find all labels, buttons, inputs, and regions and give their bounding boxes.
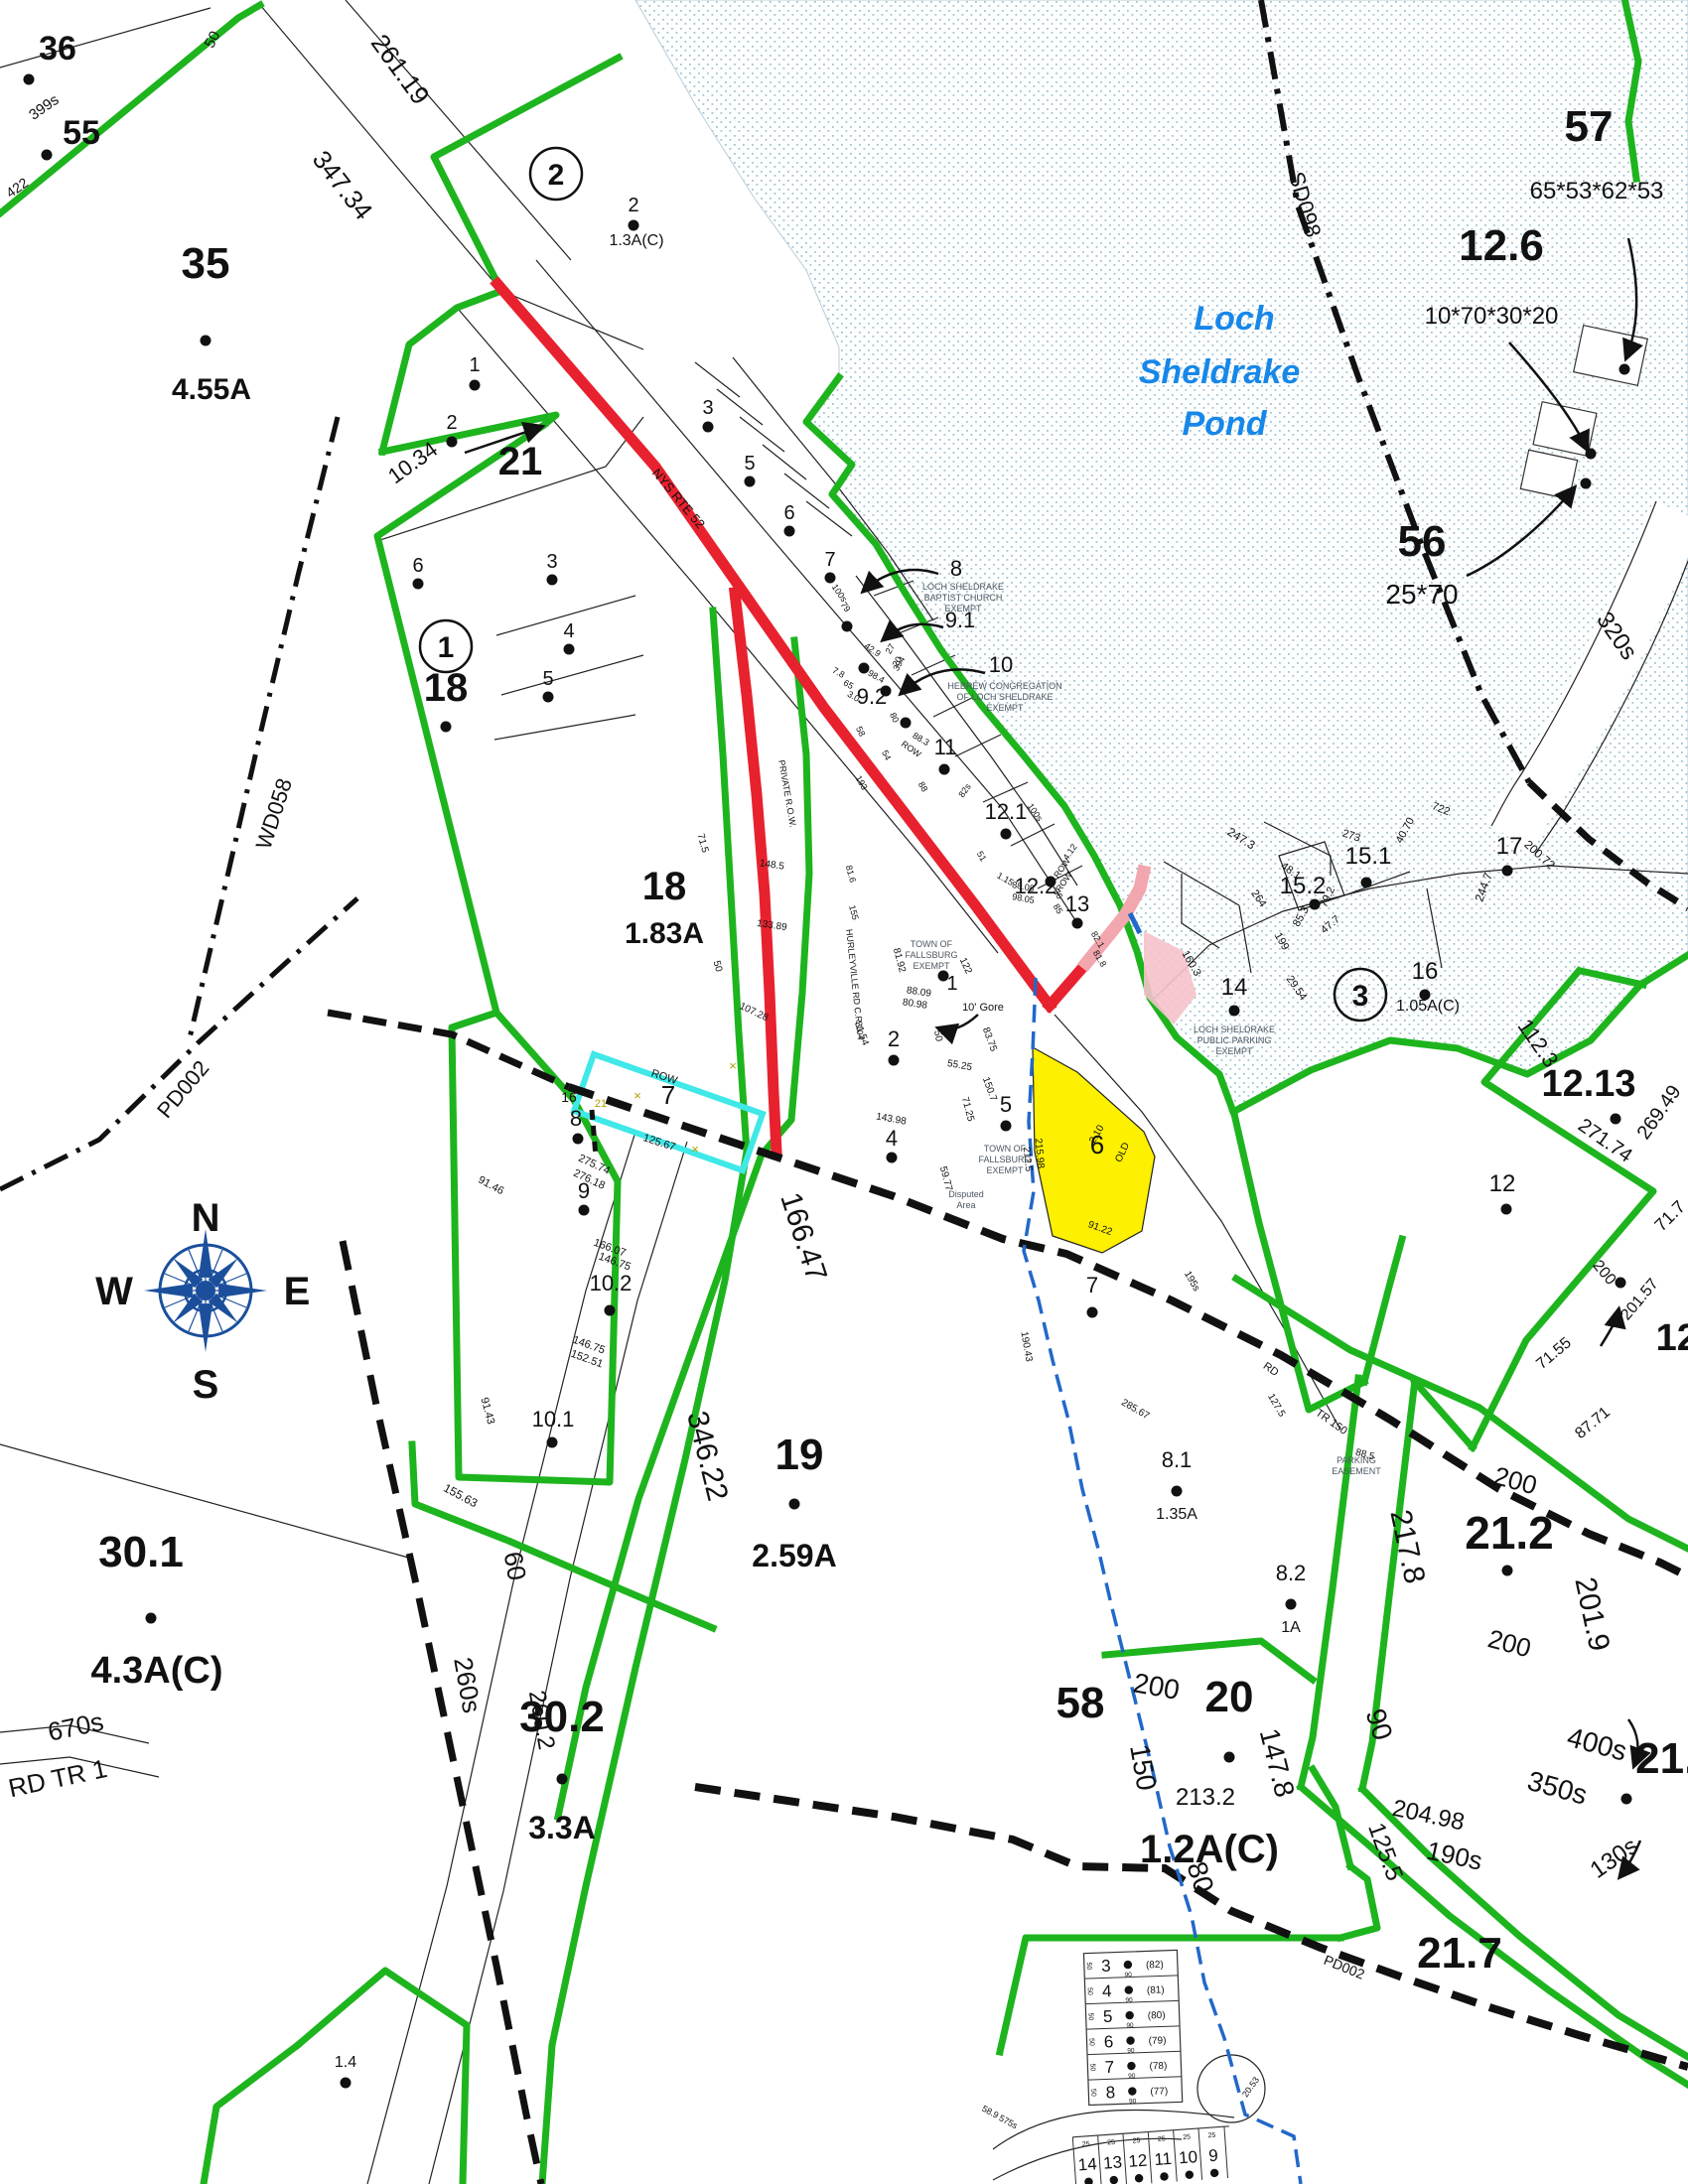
map-label: 122 — [957, 956, 974, 976]
compass-letters: N S W E — [95, 1196, 310, 1407]
map-label: 1A — [1281, 1619, 1301, 1636]
svg-text:50: 50 — [1087, 2012, 1094, 2020]
parcel-dot — [341, 2078, 352, 2089]
map-label: HEBREW CONGREGATION — [947, 681, 1061, 691]
parcel-dot — [842, 621, 853, 632]
map-label: 190s — [1424, 1836, 1484, 1876]
map-label: 3 — [702, 397, 713, 419]
map-label: × — [729, 1058, 737, 1073]
map-label: 12 — [1489, 1170, 1516, 1197]
parcel-dot — [939, 764, 950, 775]
svg-text:11: 11 — [1154, 2149, 1173, 2169]
map-label: 65*53*62*53 — [1530, 178, 1664, 205]
map-label: 1.2A(C) — [1140, 1828, 1279, 1871]
map-label: LOCH SHELDRAKE — [1194, 1024, 1275, 1034]
map-label: 125.67 — [641, 1132, 677, 1154]
parcel-dot — [1001, 1121, 1012, 1132]
parcel-dot — [1611, 1114, 1621, 1125]
parcel-dot — [1001, 829, 1012, 840]
map-label: 195s — [1182, 1270, 1201, 1294]
map-label: TOWN OF — [984, 1144, 1027, 1154]
parcel-dot — [825, 573, 836, 584]
parcel-dot — [1172, 1486, 1183, 1497]
parcel-dot — [573, 1134, 584, 1145]
map-label: 54 — [880, 749, 893, 761]
parcel-dot — [579, 1205, 590, 1216]
map-label: 91.46 — [476, 1174, 505, 1198]
circled-number: 1 — [438, 631, 455, 664]
map-label: 1.05A(C) — [1396, 998, 1460, 1015]
map-label: 8.2 — [1276, 1561, 1307, 1585]
map-label: NYS RTE 52 — [649, 466, 708, 531]
map-label: FALLSBURG — [905, 950, 957, 960]
parcel-dot — [1502, 1566, 1513, 1576]
map-label: 35 — [182, 239, 230, 288]
map-label: 55 — [63, 114, 100, 152]
map-label: 71.5 — [695, 833, 711, 855]
map-label: 21 — [498, 440, 543, 483]
map-label: 21 — [595, 1098, 607, 1110]
svg-text:25: 25 — [1082, 2141, 1090, 2149]
map-label: 11 — [934, 735, 957, 759]
parcel-dot — [42, 150, 53, 161]
lot-table-columns: 14251325122511251025925 — [1072, 2126, 1232, 2184]
map-label: 15.1 — [1345, 843, 1392, 870]
map-label: 200 — [1484, 1623, 1534, 1663]
parcel-dot — [1229, 1006, 1240, 1017]
map-label: 18 — [642, 865, 687, 908]
map-label: Disputed — [948, 1189, 984, 1199]
map-label: 50 — [711, 960, 725, 974]
map-label: 50 — [931, 1029, 944, 1042]
svg-text:9: 9 — [1208, 2146, 1219, 2166]
svg-text:50: 50 — [1089, 2089, 1096, 2097]
map-label: 2.59A — [752, 1538, 836, 1573]
map-label: 21.3 — [1635, 1734, 1688, 1783]
map-label: FALLSBURG — [978, 1155, 1031, 1164]
map-label: 10' Gore — [962, 1002, 1004, 1014]
map-label: EXEMPT — [986, 703, 1024, 713]
svg-text:3: 3 — [1101, 1957, 1111, 1976]
parcel-dot — [470, 380, 481, 391]
svg-text:(82): (82) — [1146, 1960, 1164, 1972]
parcel-dot — [745, 477, 756, 487]
parcel-dot — [201, 336, 211, 346]
map-label: 80 — [888, 711, 901, 724]
map-label: 6 — [1090, 1130, 1104, 1160]
map-label: 14 — [1221, 974, 1248, 1001]
map-label: 90 — [1359, 1705, 1398, 1743]
map-label: 9.2 — [857, 684, 888, 709]
svg-text:6: 6 — [1104, 2032, 1114, 2051]
parcel-dot — [1224, 1752, 1235, 1763]
map-label: 25*70 — [1385, 579, 1458, 610]
compass-w: W — [95, 1270, 133, 1313]
parcel-dot — [1286, 1599, 1297, 1610]
map-label: 6 — [783, 502, 794, 524]
map-label: TR 150 — [1314, 1407, 1349, 1437]
map-label: 21.7 — [1417, 1929, 1502, 1978]
map-label: LOCH SHELDRAKE — [922, 582, 1004, 592]
map-label: Area — [956, 1200, 975, 1210]
map-label: 4.55A — [172, 373, 251, 406]
map-label: 15.2 — [1280, 873, 1327, 899]
map-label: 98.4 — [866, 668, 886, 685]
svg-text:4: 4 — [1102, 1981, 1112, 2000]
parcel-dot — [1581, 478, 1592, 489]
parcel-dot — [557, 1774, 568, 1785]
map-label: 71.55 — [1533, 1334, 1575, 1373]
map-label: 16 — [1412, 958, 1439, 985]
map-label: 10.1 — [532, 1407, 575, 1432]
map-label: 2 — [446, 412, 457, 434]
map-label: 65 — [842, 678, 856, 692]
map-label: 347.34 — [307, 145, 379, 225]
map-label: 83.75 — [980, 1026, 999, 1054]
map-label: 215.98 — [1033, 1138, 1047, 1169]
map-label: 1.3A(C) — [609, 232, 663, 249]
map-label: 575s — [997, 2113, 1019, 2130]
map-label: × — [691, 1142, 699, 1157]
map-label: 88 — [916, 780, 930, 794]
parcel-dot — [543, 692, 554, 703]
parcel-dot — [1619, 364, 1630, 375]
map-label: 2 — [888, 1026, 900, 1051]
map-label: WD058 — [251, 775, 297, 852]
parcel-dot — [889, 1055, 900, 1066]
map-label: 71.7 — [1650, 1196, 1688, 1235]
map-label: 285.67 — [1119, 1397, 1151, 1422]
map-label: 5 — [1000, 1092, 1012, 1117]
map-label: 8 — [950, 556, 962, 581]
map-label: 4 — [563, 620, 574, 642]
map-label: PUBLIC PARKING — [1197, 1035, 1272, 1045]
map-label: 27 — [884, 642, 898, 656]
parcel-dot — [703, 422, 714, 433]
map-label: OF LOCH SHELDRAKE — [956, 692, 1053, 702]
map-label: Sheldrake — [1139, 353, 1301, 391]
map-label: 51 — [975, 850, 989, 864]
svg-text:12: 12 — [1128, 2151, 1148, 2171]
map-label: 150.7 — [980, 1076, 999, 1104]
small-lot-tables: 3(82)50904(81)50905(80)50906(79)50907(78… — [1072, 1950, 1232, 2184]
map-label: 21.2 — [1465, 1507, 1554, 1559]
map-label: 57 — [1565, 102, 1614, 151]
map-label: 85 — [1052, 902, 1065, 916]
map-label: EXEMPT — [986, 1165, 1024, 1175]
parcel-dot — [564, 644, 575, 655]
map-label: 261.19 — [365, 29, 436, 110]
map-label: 1.83A — [625, 917, 704, 950]
parcel-dot — [887, 1153, 898, 1163]
svg-text:10: 10 — [1178, 2147, 1197, 2167]
map-label: EXEMPT — [1215, 1046, 1253, 1056]
map-label: 7 — [824, 549, 835, 571]
map-label: 10.2 — [590, 1271, 633, 1296]
map-label: 91.43 — [479, 1396, 497, 1426]
parcel-dot — [447, 437, 458, 448]
map-label: 100s — [1026, 801, 1046, 823]
map-label: 19 — [775, 1431, 824, 1479]
map-label: 200 — [1131, 1667, 1182, 1706]
map-label: × — [633, 1088, 641, 1103]
map-label: 213.2 — [1176, 1784, 1235, 1811]
parcel-dot — [1586, 449, 1597, 460]
svg-text:50: 50 — [1085, 1962, 1092, 1970]
svg-text:8: 8 — [1105, 2083, 1115, 2102]
map-label: 4.3A(C) — [90, 1650, 222, 1692]
parcel-dot — [859, 663, 870, 674]
map-label: 200 — [1490, 1460, 1540, 1500]
svg-text:5: 5 — [1103, 2007, 1113, 2026]
map-label: 6 — [412, 555, 423, 577]
map-label: PRIVATE R.O.W. — [776, 759, 798, 828]
parcel-dot — [1072, 918, 1083, 929]
map-label: 55.25 — [946, 1058, 973, 1073]
map-label: 10*70*30*20 — [1425, 303, 1559, 330]
map-label: 5 — [542, 668, 553, 690]
map-label: 12.13 — [1541, 1063, 1635, 1105]
svg-text:25: 25 — [1132, 2137, 1140, 2145]
svg-text:(77): (77) — [1150, 2086, 1168, 2098]
map-label: EXEMPT — [944, 604, 982, 614]
svg-text:(80): (80) — [1148, 2010, 1166, 2022]
parcel-dot — [629, 220, 639, 231]
circled-number: 3 — [1352, 980, 1369, 1013]
map-label: 17 — [1496, 833, 1523, 860]
map-label: 60 — [498, 1550, 533, 1583]
map-label: 87.71 — [1572, 1404, 1614, 1442]
map-label: 80.98 — [902, 997, 928, 1011]
map-label: PD002 — [152, 1055, 213, 1123]
map-label: 10 — [989, 652, 1013, 677]
svg-text:25: 25 — [1158, 2135, 1166, 2143]
map-label: 30.2 — [519, 1693, 605, 1741]
map-label: 20 — [1205, 1673, 1254, 1721]
svg-text:50: 50 — [1088, 2063, 1095, 2071]
parcel-dot — [784, 526, 795, 537]
map-label: 1 — [469, 354, 480, 376]
map-label: 193 — [854, 773, 870, 791]
map-label: 422 — [3, 175, 31, 202]
compass-s: S — [193, 1363, 219, 1407]
map-label: 20.53 — [1240, 2075, 1261, 2099]
svg-text:13: 13 — [1102, 2152, 1122, 2172]
map-label: 155 — [847, 904, 861, 921]
map-label: 1 — [946, 973, 957, 995]
svg-text:90: 90 — [1129, 2098, 1137, 2105]
parcel-dot — [146, 1613, 157, 1624]
parcel-dot — [1361, 878, 1372, 888]
parcel-dot — [605, 1305, 616, 1316]
map-label: 4 — [886, 1126, 898, 1151]
map-label: 147.8 — [1254, 1725, 1301, 1800]
parcel-map: N S W E 213 3(82)50904(81)50905(80)50906… — [0, 0, 1688, 2184]
map-label: 18 — [424, 666, 469, 710]
compass-e: E — [284, 1270, 311, 1313]
map-label: BAPTIST CHURCH — [924, 593, 1003, 603]
map-label: Loch — [1194, 300, 1274, 338]
parcel-dot — [441, 722, 452, 733]
map-label: 260s — [448, 1655, 487, 1715]
svg-text:(78): (78) — [1149, 2061, 1167, 2073]
map-label: 13 — [1065, 891, 1089, 916]
svg-text:50: 50 — [1087, 2038, 1094, 2046]
map-label: 12.6 — [1459, 221, 1544, 270]
map-label: 71.25 — [959, 1096, 976, 1123]
svg-text:25: 25 — [1107, 2139, 1115, 2147]
map-label: 58 — [854, 725, 867, 738]
svg-text:7: 7 — [1104, 2058, 1114, 2077]
map-label: 8 — [570, 1106, 582, 1131]
map-label: 9 — [578, 1178, 590, 1203]
map-label: 190.43 — [1018, 1331, 1034, 1363]
map-label: 81.54 — [852, 1021, 871, 1048]
map-label: 82s — [956, 781, 973, 799]
map-label: 2 — [628, 195, 638, 216]
map-label: 16 — [561, 1089, 577, 1105]
map-label: Pond — [1183, 405, 1268, 443]
map-label: 166.47 — [774, 1188, 833, 1285]
map-label: 30.1 — [98, 1528, 184, 1576]
svg-text:25: 25 — [1183, 2134, 1191, 2142]
map-label: 269.49 — [1633, 1081, 1686, 1144]
svg-text:(79): (79) — [1148, 2035, 1166, 2047]
map-label: 58.9 — [980, 2104, 1000, 2120]
map-label: 36 — [39, 30, 76, 68]
map-label: RD TR 1 — [6, 1753, 110, 1803]
map-label: 3 — [546, 551, 557, 573]
map-label: 7.8 — [831, 665, 847, 680]
map-label: RD — [1261, 1360, 1281, 1379]
map-label: EASEMENT — [1332, 1466, 1381, 1476]
circled-number: 2 — [548, 159, 565, 192]
map-label: 5 — [744, 453, 755, 475]
parcel-dot — [547, 575, 558, 586]
map-label: 1.35A — [1156, 1506, 1197, 1523]
map-canvas: N S W E 213 3(82)50904(81)50905(80)50906… — [0, 0, 1688, 2184]
map-label: 670s — [45, 1706, 105, 1747]
lot-table-rows: 3(82)50904(81)50905(80)50906(79)50907(78… — [1083, 1950, 1182, 2107]
map-label: 81.6 — [844, 864, 858, 884]
map-label: 399s — [26, 91, 62, 124]
map-label: 12. — [1656, 1317, 1688, 1359]
map-label: 8.1 — [1162, 1447, 1193, 1472]
map-label: 400s — [1564, 1721, 1630, 1767]
map-label: 350s — [1524, 1765, 1591, 1811]
parcel-dot — [413, 579, 424, 590]
svg-text:14: 14 — [1077, 2154, 1097, 2174]
map-label: 7 — [1086, 1273, 1098, 1297]
compass-points — [144, 1229, 267, 1352]
map-label: 1.4 — [335, 2054, 356, 2071]
svg-text:50: 50 — [1086, 1987, 1093, 1995]
map-label: EXEMPT — [913, 961, 950, 971]
map-label: TOWN OF — [911, 939, 953, 949]
map-label: 133.89 — [756, 918, 787, 933]
parcel-dot — [901, 718, 912, 729]
compass-rose: N S W E — [95, 1196, 310, 1407]
map-label: 127.5 — [1265, 1392, 1287, 1420]
map-label: 12.1 — [985, 799, 1028, 824]
map-label: 155.63 — [441, 1481, 480, 1511]
parcel-dot — [24, 74, 35, 85]
svg-text:(81): (81) — [1147, 1984, 1165, 1996]
map-label: 3.3A — [528, 1810, 596, 1845]
map-label: 201.9 — [1568, 1574, 1616, 1654]
parcel-dot — [1621, 1794, 1632, 1805]
parcel-dot — [1087, 1307, 1098, 1318]
map-label: 130s — [1586, 1833, 1643, 1884]
map-label: 150 — [1124, 1742, 1163, 1793]
compass-n: N — [192, 1196, 220, 1240]
map-label: 56 — [1398, 517, 1447, 566]
parcel-dot — [1501, 1204, 1512, 1215]
parcel-dot — [789, 1499, 800, 1510]
parcel-dot — [547, 1437, 558, 1448]
svg-text:25: 25 — [1207, 2132, 1215, 2140]
parcel-dot — [1502, 866, 1513, 877]
map-label: 58 — [1056, 1679, 1105, 1727]
